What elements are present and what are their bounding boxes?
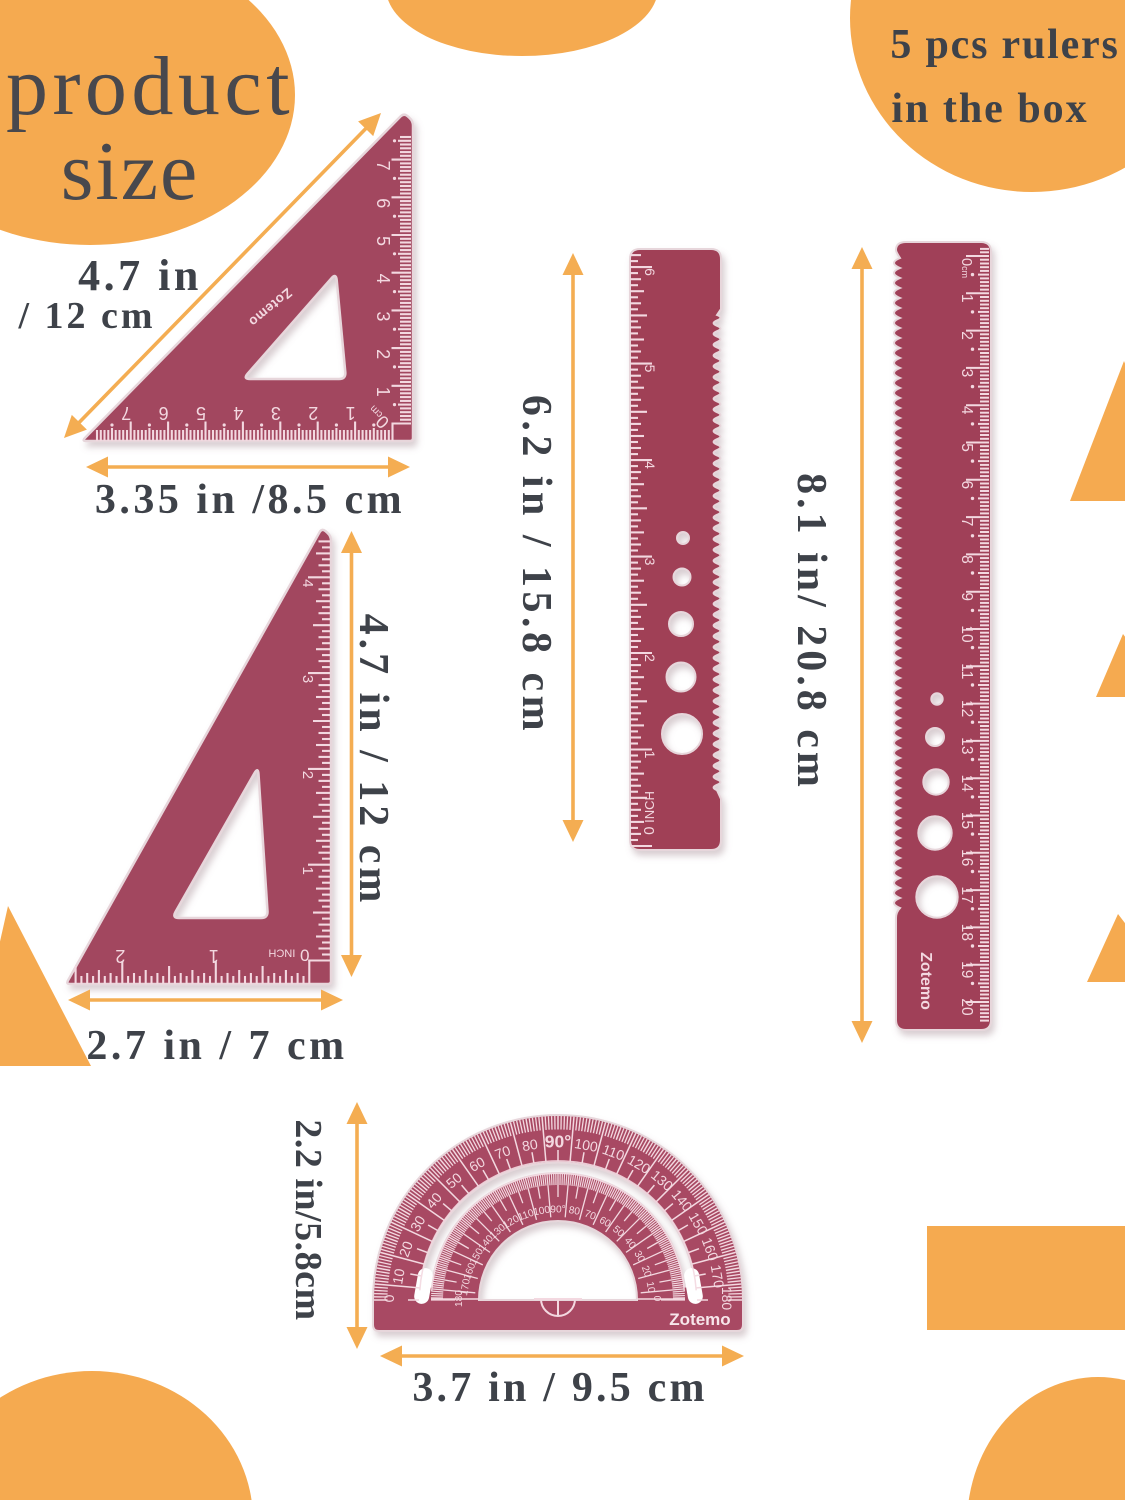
svg-text:1: 1 — [346, 403, 356, 423]
svg-text:4: 4 — [299, 579, 316, 587]
svg-text:4.7 in: 4.7 in — [78, 251, 202, 300]
svg-text:16: 16 — [958, 849, 975, 866]
svg-text:product: product — [6, 40, 294, 133]
svg-text:5 pcs rulers: 5 pcs rulers — [890, 22, 1119, 68]
svg-text:0: 0 — [381, 1294, 397, 1302]
svg-text:1: 1 — [299, 867, 316, 875]
svg-text:8.1 in/ 20.8 cm: 8.1 in/ 20.8 cm — [788, 473, 834, 791]
svg-text:6: 6 — [642, 268, 658, 276]
svg-text:5: 5 — [642, 365, 658, 373]
svg-text:size: size — [61, 125, 200, 218]
svg-text:in the box: in the box — [891, 86, 1088, 132]
svg-text:18: 18 — [958, 924, 975, 941]
svg-text:6: 6 — [159, 403, 169, 423]
svg-text:Zotemo: Zotemo — [669, 1310, 730, 1329]
svg-text:6: 6 — [958, 480, 975, 489]
svg-text:1: 1 — [373, 387, 393, 397]
svg-text:2: 2 — [642, 654, 658, 662]
svg-text:11: 11 — [958, 663, 975, 679]
svg-text:5: 5 — [196, 403, 206, 423]
svg-text:3: 3 — [271, 403, 281, 423]
svg-text:7: 7 — [121, 403, 131, 423]
svg-text:80: 80 — [521, 1136, 539, 1154]
svg-text:0 INCH: 0 INCH — [641, 791, 658, 835]
svg-text:2: 2 — [373, 349, 393, 359]
svg-text:10: 10 — [389, 1267, 407, 1285]
svg-text:3.7 in / 9.5 cm: 3.7 in / 9.5 cm — [412, 1365, 707, 1411]
svg-text:2: 2 — [115, 946, 125, 966]
svg-text:/ 12 cm: / 12 cm — [17, 295, 155, 337]
svg-text:3: 3 — [373, 311, 393, 321]
svg-text:90°: 90° — [550, 1205, 565, 1216]
svg-text:6.2 in / 15.8 cm: 6.2 in / 15.8 cm — [513, 395, 559, 735]
svg-text:3: 3 — [958, 369, 975, 378]
svg-text:17: 17 — [958, 886, 975, 903]
svg-text:Zotemo: Zotemo — [917, 952, 934, 1010]
svg-text:13: 13 — [958, 737, 975, 754]
svg-text:2: 2 — [299, 771, 316, 779]
svg-text:15: 15 — [958, 812, 975, 829]
svg-text:5: 5 — [958, 443, 975, 452]
svg-text:4: 4 — [958, 406, 975, 415]
svg-text:2: 2 — [308, 403, 318, 423]
svg-text:180: 180 — [719, 1287, 735, 1311]
svg-text:3.35 in /8.5 cm: 3.35 in /8.5 cm — [95, 477, 405, 523]
svg-text:12: 12 — [958, 700, 975, 717]
svg-text:3: 3 — [299, 675, 316, 683]
svg-text:1: 1 — [958, 294, 975, 303]
svg-text:2: 2 — [958, 331, 975, 340]
svg-text:4: 4 — [373, 274, 393, 284]
svg-text:14: 14 — [958, 775, 975, 793]
svg-text:4: 4 — [233, 403, 243, 423]
svg-text:19: 19 — [958, 961, 975, 978]
svg-text:80: 80 — [568, 1205, 581, 1218]
svg-text:1: 1 — [209, 946, 219, 966]
svg-text:20: 20 — [958, 998, 975, 1016]
svg-text:1: 1 — [642, 751, 658, 759]
svg-text:7: 7 — [958, 518, 975, 527]
svg-text:7: 7 — [373, 161, 393, 171]
svg-text:8: 8 — [958, 555, 975, 564]
svg-text:4.7 in / 12 cm: 4.7 in / 12 cm — [350, 614, 396, 907]
svg-text:9: 9 — [958, 592, 975, 601]
svg-text:5: 5 — [373, 236, 393, 246]
svg-text:6: 6 — [373, 198, 393, 208]
svg-text:2.7 in / 7 cm: 2.7 in / 7 cm — [86, 1023, 347, 1069]
svg-text:2.2 in/5.8cm: 2.2 in/5.8cm — [287, 1119, 329, 1320]
svg-text:10: 10 — [644, 1281, 657, 1294]
svg-text:10: 10 — [958, 625, 975, 643]
svg-text:4: 4 — [642, 461, 658, 469]
svg-text:90°: 90° — [545, 1132, 571, 1152]
svg-text:3: 3 — [642, 558, 658, 566]
